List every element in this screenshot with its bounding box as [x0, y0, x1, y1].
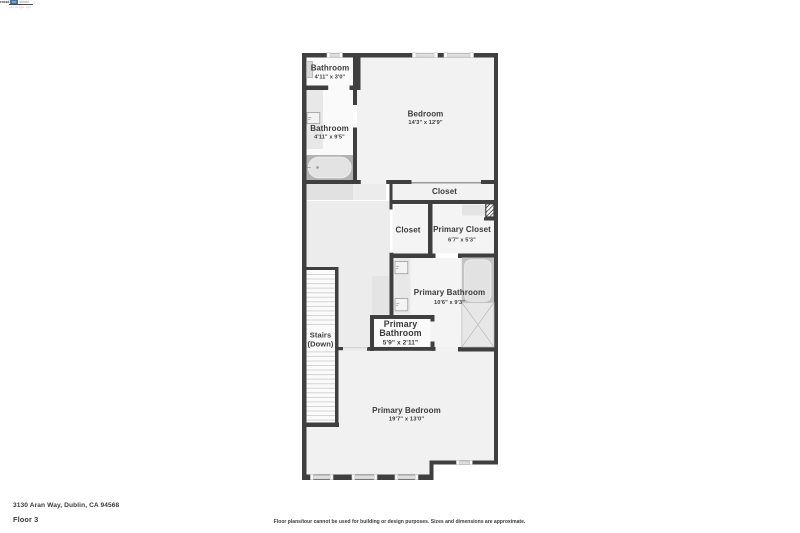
svg-text:5'9" x 2'11": 5'9" x 2'11": [383, 340, 418, 347]
svg-text:Primary Bathroom: Primary Bathroom: [414, 288, 485, 297]
svg-text:Bedroom: Bedroom: [408, 110, 444, 119]
svg-text:Primary Closet: Primary Closet: [433, 225, 491, 234]
svg-text:10'6" x 9'3": 10'6" x 9'3": [434, 300, 465, 306]
svg-text:Bathroom: Bathroom: [379, 328, 421, 338]
svg-text:(Down): (Down): [307, 340, 333, 349]
svg-text:Primary Bedroom: Primary Bedroom: [372, 406, 441, 415]
svg-text:4'11" x 9'5": 4'11" x 9'5": [314, 135, 345, 141]
svg-text:Closet: Closet: [395, 226, 420, 235]
svg-text:Closet: Closet: [432, 187, 457, 196]
svg-text:Bathroom: Bathroom: [310, 124, 349, 133]
svg-text:4'11" x 3'0": 4'11" x 3'0": [315, 75, 346, 81]
svg-text:6'7" x 5'3": 6'7" x 5'3": [448, 238, 476, 244]
svg-text:19'7" x 13'0": 19'7" x 13'0": [389, 417, 424, 423]
svg-text:Bathroom: Bathroom: [311, 64, 350, 73]
svg-text:14'3" x 12'9": 14'3" x 12'9": [408, 120, 442, 126]
svg-text:Stairs: Stairs: [310, 331, 331, 340]
